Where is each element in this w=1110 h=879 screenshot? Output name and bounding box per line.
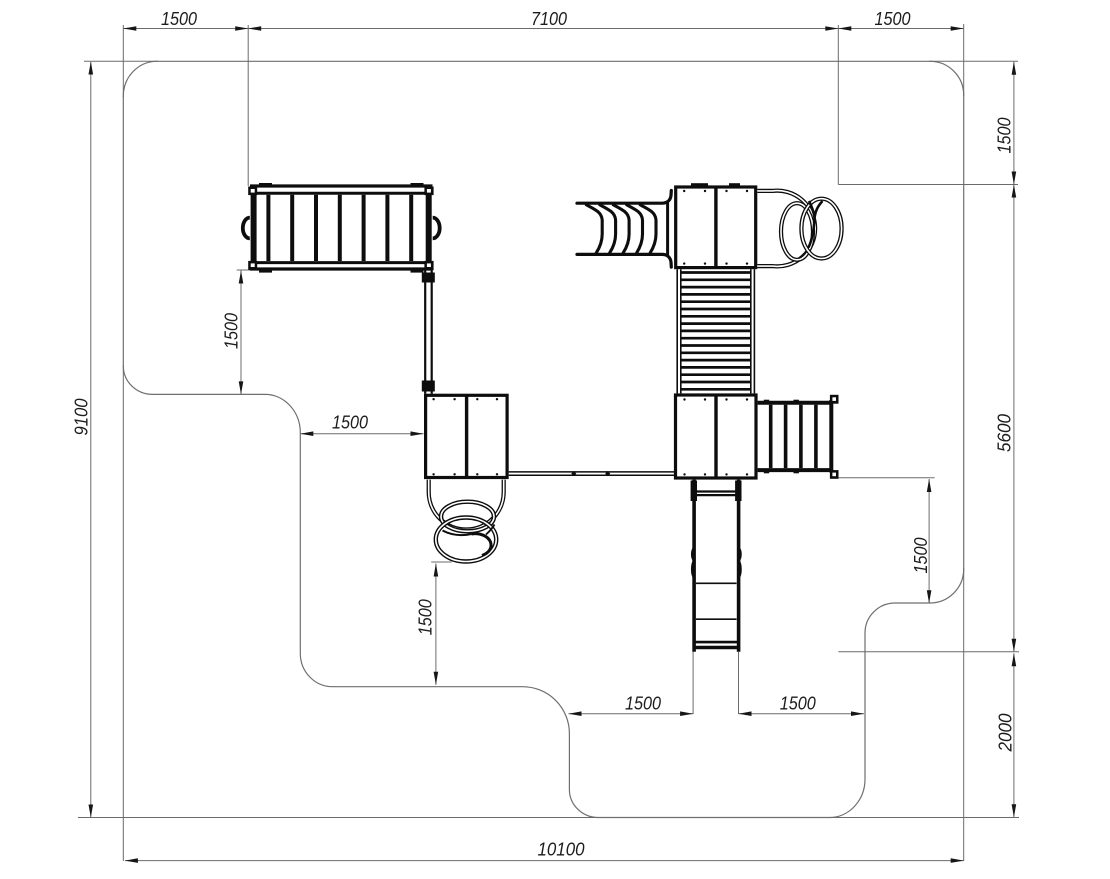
svg-text:1500: 1500 <box>625 693 662 714</box>
svg-text:7100: 7100 <box>531 8 568 29</box>
svg-text:1500: 1500 <box>332 412 369 433</box>
svg-text:1500: 1500 <box>161 8 198 29</box>
svg-text:1500: 1500 <box>221 312 242 349</box>
svg-text:1500: 1500 <box>780 693 817 714</box>
svg-text:9100: 9100 <box>70 398 91 436</box>
svg-text:10100: 10100 <box>538 839 586 860</box>
svg-text:1500: 1500 <box>910 537 931 574</box>
svg-text:2000: 2000 <box>995 713 1016 753</box>
svg-text:5600: 5600 <box>994 413 1015 452</box>
svg-text:1500: 1500 <box>415 599 436 636</box>
svg-text:1500: 1500 <box>994 117 1015 154</box>
svg-text:1500: 1500 <box>875 8 912 29</box>
